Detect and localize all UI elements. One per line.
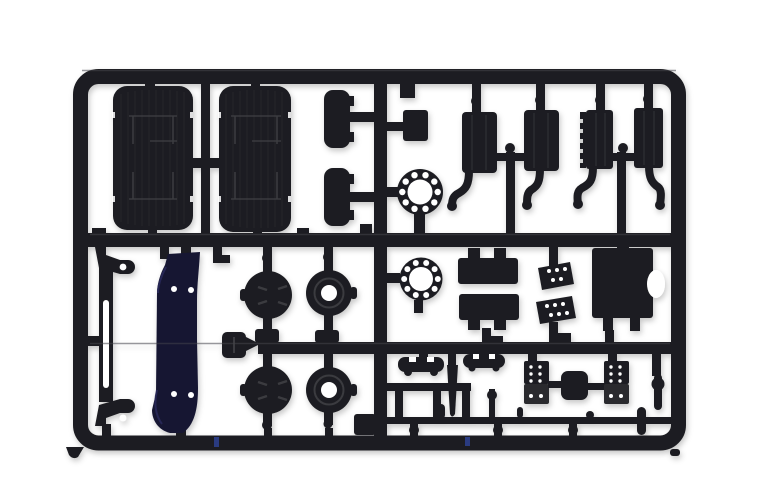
tank-runner-1-arms: [495, 153, 526, 161]
tank-pipe: [527, 169, 540, 205]
chassis-bracket: [88, 247, 135, 438]
wheel-hub-solid-1: [240, 271, 292, 319]
tank-seam-lines: [472, 111, 654, 170]
small-box: [354, 414, 376, 435]
knob-pin: [652, 374, 665, 410]
air-tank-2: [522, 110, 559, 210]
sprue-gate: [414, 214, 425, 236]
sprue-gate: [670, 449, 680, 456]
wheel-hub-holed-1: [306, 270, 357, 316]
wheel-hub-holed-2: [306, 367, 357, 413]
photo-canvas: [0, 0, 759, 503]
sprue-gate: [414, 300, 423, 313]
tank-pipe: [649, 166, 661, 205]
sprue-gate: [297, 228, 309, 237]
step-plate-2: [536, 296, 576, 342]
pedal-box-2: [604, 352, 629, 404]
air-tank-3: [573, 110, 613, 209]
step-plate-1: [538, 246, 574, 290]
wheel-hub-solid-2: [240, 366, 292, 414]
sprue-gate: [505, 143, 515, 153]
sprue-gate: [386, 273, 400, 283]
bracket-bottom-hook: [95, 399, 135, 426]
mudflap-bracket-2: [324, 168, 376, 226]
tank-pipe: [452, 171, 469, 206]
rectangular-tank-1: [458, 248, 518, 284]
air-tank-4: [634, 108, 665, 210]
sprue-gate: [92, 228, 106, 239]
sprue-gate: [618, 143, 628, 153]
sprue-photo: [0, 0, 759, 503]
mudguard-2: [219, 86, 291, 232]
gear-lever: [487, 389, 497, 421]
sprue-gate: [400, 83, 415, 98]
tank-runner-2: [617, 152, 626, 240]
small-plate: [403, 110, 428, 141]
sprue-gate: [66, 447, 84, 458]
pedal-link: [548, 371, 606, 400]
ladder-frame: [385, 383, 471, 419]
bracket-foot: [102, 424, 111, 438]
tank-runner-2-arms: [611, 153, 636, 161]
linkage-rod: [387, 404, 677, 436]
corner-runner: [652, 342, 661, 376]
tank-runner-1: [506, 152, 515, 240]
tank-pipe: [577, 167, 593, 204]
pedal-box-1: [524, 352, 549, 404]
fender-cross-link: [191, 158, 221, 168]
sprue-gate: [385, 122, 404, 131]
fender-liner-navy: [152, 242, 200, 438]
hub-ring-bottom: [400, 258, 443, 301]
rectangular-tank-2: [459, 294, 519, 344]
sprue-gate: [643, 94, 653, 104]
battery-box: [592, 240, 665, 343]
mudflap-bracket-1: [324, 90, 376, 148]
hub-ring-top: [397, 169, 443, 215]
sprue-gate: [213, 255, 230, 263]
sprue-gate: [360, 224, 372, 234]
sprue-gate: [595, 95, 605, 105]
mudguard-1: [113, 86, 193, 230]
sprue-gate: [535, 95, 545, 105]
sprue-gate: [471, 96, 481, 106]
